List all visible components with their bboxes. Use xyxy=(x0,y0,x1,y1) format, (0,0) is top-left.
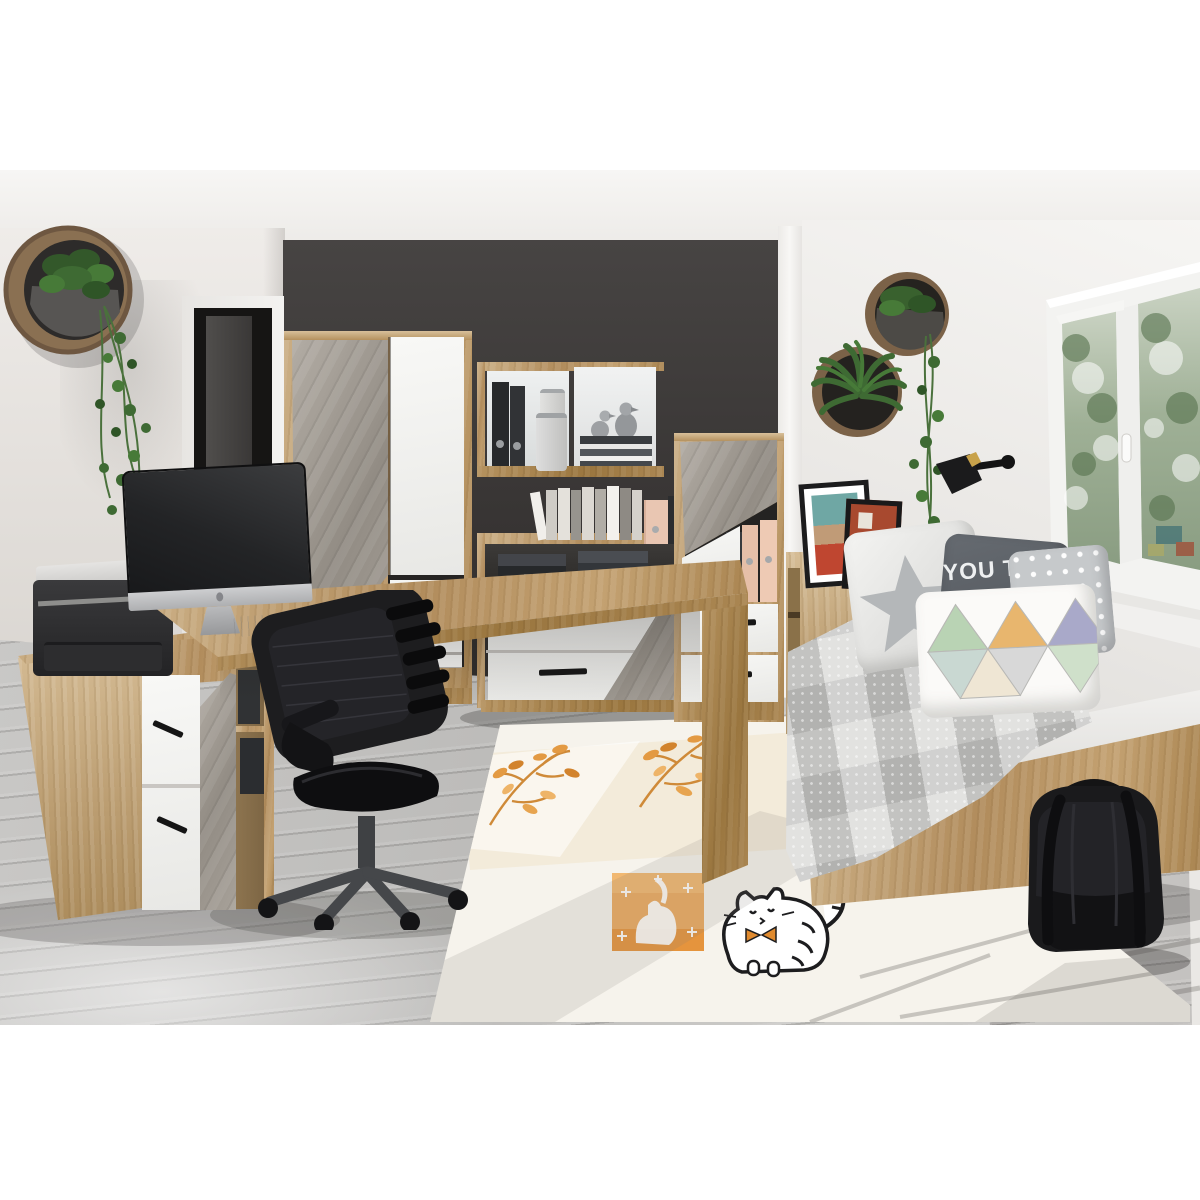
shelf-figurines xyxy=(584,400,644,440)
picture-2-highlight xyxy=(858,512,873,529)
computer-screen xyxy=(122,462,312,595)
triangle-print xyxy=(915,583,1101,718)
chair-backrest xyxy=(246,590,463,768)
desk-side-panel xyxy=(700,590,750,886)
wall-planter-lower-fern xyxy=(812,342,904,437)
shelf-binder-rings2 xyxy=(513,442,521,450)
book-spine xyxy=(558,488,570,540)
folder-grommet-1 xyxy=(746,558,753,565)
wall-shelf-bottom xyxy=(477,466,664,477)
shelf-canister-large xyxy=(536,413,567,471)
book-spine xyxy=(607,486,619,540)
book-spine xyxy=(571,490,581,540)
chair-base xyxy=(270,872,456,920)
pink-binder xyxy=(644,500,670,544)
shelf-binder-rings xyxy=(496,440,504,448)
wardrobe-door-gap xyxy=(388,337,391,575)
wall-shelf-side xyxy=(477,362,485,475)
office-chair xyxy=(232,590,482,930)
pink-binder-ring xyxy=(652,526,659,533)
book-spine xyxy=(632,490,642,540)
book-spine xyxy=(595,489,606,540)
shelf-book-stack xyxy=(580,436,652,466)
wardrobe-white-door xyxy=(390,337,464,575)
book-spine xyxy=(546,490,557,540)
narrow-cabinet-top-edge xyxy=(674,433,784,441)
chair-gas-lift xyxy=(358,816,375,868)
window-handle xyxy=(1122,434,1131,462)
pillow-triangles xyxy=(915,583,1101,718)
backpack xyxy=(1008,770,1183,970)
room-photo: YOU T MOO O BACK xyxy=(0,170,1200,1025)
shelf-binder-2 xyxy=(510,386,525,466)
folder-grommet-2 xyxy=(765,556,772,563)
shelf-binder-1 xyxy=(492,382,509,466)
product-photo-canvas: YOU T MOO O BACK xyxy=(0,0,1200,1200)
book-spine xyxy=(620,488,631,540)
book-spine xyxy=(582,487,594,540)
sideboard-books xyxy=(534,484,642,540)
low-cabinet-drawers xyxy=(142,675,200,910)
low-cabinet-drawer-gap xyxy=(142,784,200,788)
wall-lamp xyxy=(936,452,1015,494)
